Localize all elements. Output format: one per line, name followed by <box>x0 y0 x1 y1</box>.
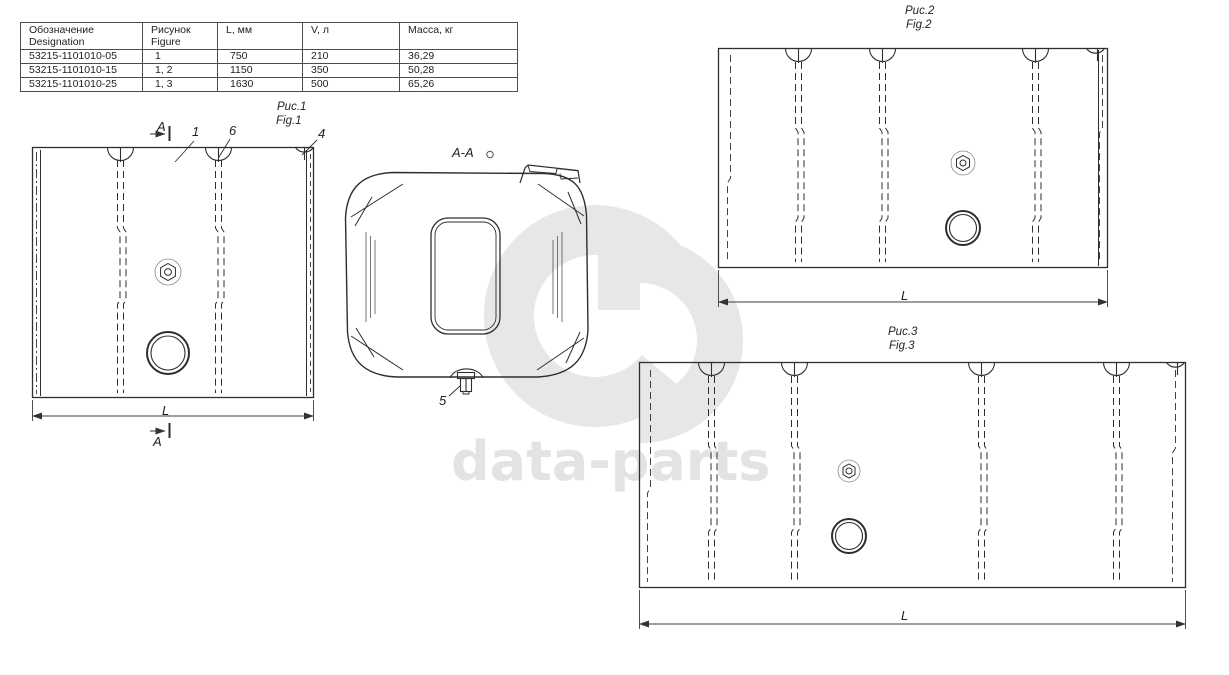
section-callout-leader <box>449 386 460 396</box>
header-line: V, л <box>311 24 399 36</box>
col-header-mass: Масса, кг <box>400 23 518 50</box>
section-label-mark-icon <box>487 151 493 157</box>
section-recess <box>431 218 500 334</box>
header-line: L, мм <box>226 24 302 36</box>
fig2-filler-cap-icon <box>951 151 975 175</box>
fig3-label-ru: Рис.3 <box>888 327 917 339</box>
header-line: Масса, кг <box>408 24 517 36</box>
section-outline <box>346 173 589 378</box>
header-line: Figure <box>151 36 217 48</box>
cell-figure: 1 <box>143 50 218 64</box>
catalog-page: data-parts <box>0 0 1229 675</box>
callout-1: 1 <box>192 125 199 138</box>
header-line: Рисунок <box>151 24 217 36</box>
col-header-figure: Рисунок Figure <box>143 23 218 50</box>
callout-6: 6 <box>229 124 236 137</box>
header-line: Designation <box>29 36 142 48</box>
col-header-volume: V, л <box>303 23 400 50</box>
cell-mass: 36,29 <box>400 50 518 64</box>
fig1-drawing <box>33 126 318 438</box>
table-row: 53215-1101010-15 1, 2 1150 350 50,28 <box>21 64 518 78</box>
cell-mass: 50,28 <box>400 64 518 78</box>
table-header-row: Обозначение Designation Рисунок Figure L… <box>21 23 518 50</box>
fig2-dimension <box>719 270 1108 307</box>
fig2-sender-ring-icon <box>946 211 980 245</box>
cell-volume: 350 <box>303 64 400 78</box>
fig2-strap-lines <box>796 62 1042 262</box>
fig1-dimension <box>33 400 314 421</box>
cell-length: 1150 <box>218 64 303 78</box>
section-mark-a-top: A <box>157 120 166 133</box>
fig1-strap-cutouts <box>108 148 314 163</box>
fig3-label-en: Fig.3 <box>889 341 915 353</box>
fig2-label-ru: Рис.2 <box>905 6 934 18</box>
fig3-dimension <box>640 590 1186 629</box>
fig3-filler-cap-icon <box>838 460 860 482</box>
fig1-sender-ring-icon <box>147 332 189 374</box>
fig1-filler-cap-icon <box>155 259 181 285</box>
fig3-strap-cutouts <box>699 363 1185 378</box>
callout-4: 4 <box>318 127 325 140</box>
section-view-drawing <box>346 151 589 396</box>
section-label: A-A <box>452 146 474 159</box>
fig1-dim-label: L <box>162 404 169 417</box>
fig3-drawing <box>640 363 1186 630</box>
fig3-dim-label: L <box>901 609 908 622</box>
header-line: Обозначение <box>29 24 142 36</box>
cell-length: 1630 <box>218 78 303 92</box>
fig1-strap-lines <box>118 160 225 393</box>
fig1-label-en: Fig.1 <box>276 116 302 128</box>
cell-volume: 210 <box>303 50 400 64</box>
drawings <box>0 0 1229 675</box>
fig2-dim-label: L <box>901 289 908 302</box>
fig1-label-ru: Рис.1 <box>277 102 306 114</box>
section-mark-a-bottom: A <box>153 435 162 448</box>
fig2-label-en: Fig.2 <box>906 20 932 32</box>
fig2-strap-cutouts <box>786 49 1105 64</box>
fig3-tank-outline <box>640 363 1186 588</box>
cell-mass: 65,26 <box>400 78 518 92</box>
table-row: 53215-1101010-05 1 750 210 36,29 <box>21 50 518 64</box>
fig2-drawing <box>719 49 1108 308</box>
cell-figure: 1, 2 <box>143 64 218 78</box>
fig1-callout-leaders <box>175 139 317 162</box>
cell-designation: 53215-1101010-15 <box>21 64 143 78</box>
fig1-tank-outline <box>33 148 314 398</box>
cell-designation: 53215-1101010-05 <box>21 50 143 64</box>
cell-designation: 53215-1101010-25 <box>21 78 143 92</box>
cell-length: 750 <box>218 50 303 64</box>
fig3-strap-lines <box>709 376 1123 582</box>
fig2-tank-outline <box>719 49 1108 268</box>
col-header-length: L, мм <box>218 23 303 50</box>
callout-5: 5 <box>439 394 446 407</box>
cell-figure: 1, 3 <box>143 78 218 92</box>
table-row: 53215-1101010-25 1, 3 1630 500 65,26 <box>21 78 518 92</box>
spec-table: Обозначение Designation Рисунок Figure L… <box>20 22 518 92</box>
fig3-sender-ring-icon <box>832 519 866 553</box>
col-header-designation: Обозначение Designation <box>21 23 143 50</box>
cell-volume: 500 <box>303 78 400 92</box>
